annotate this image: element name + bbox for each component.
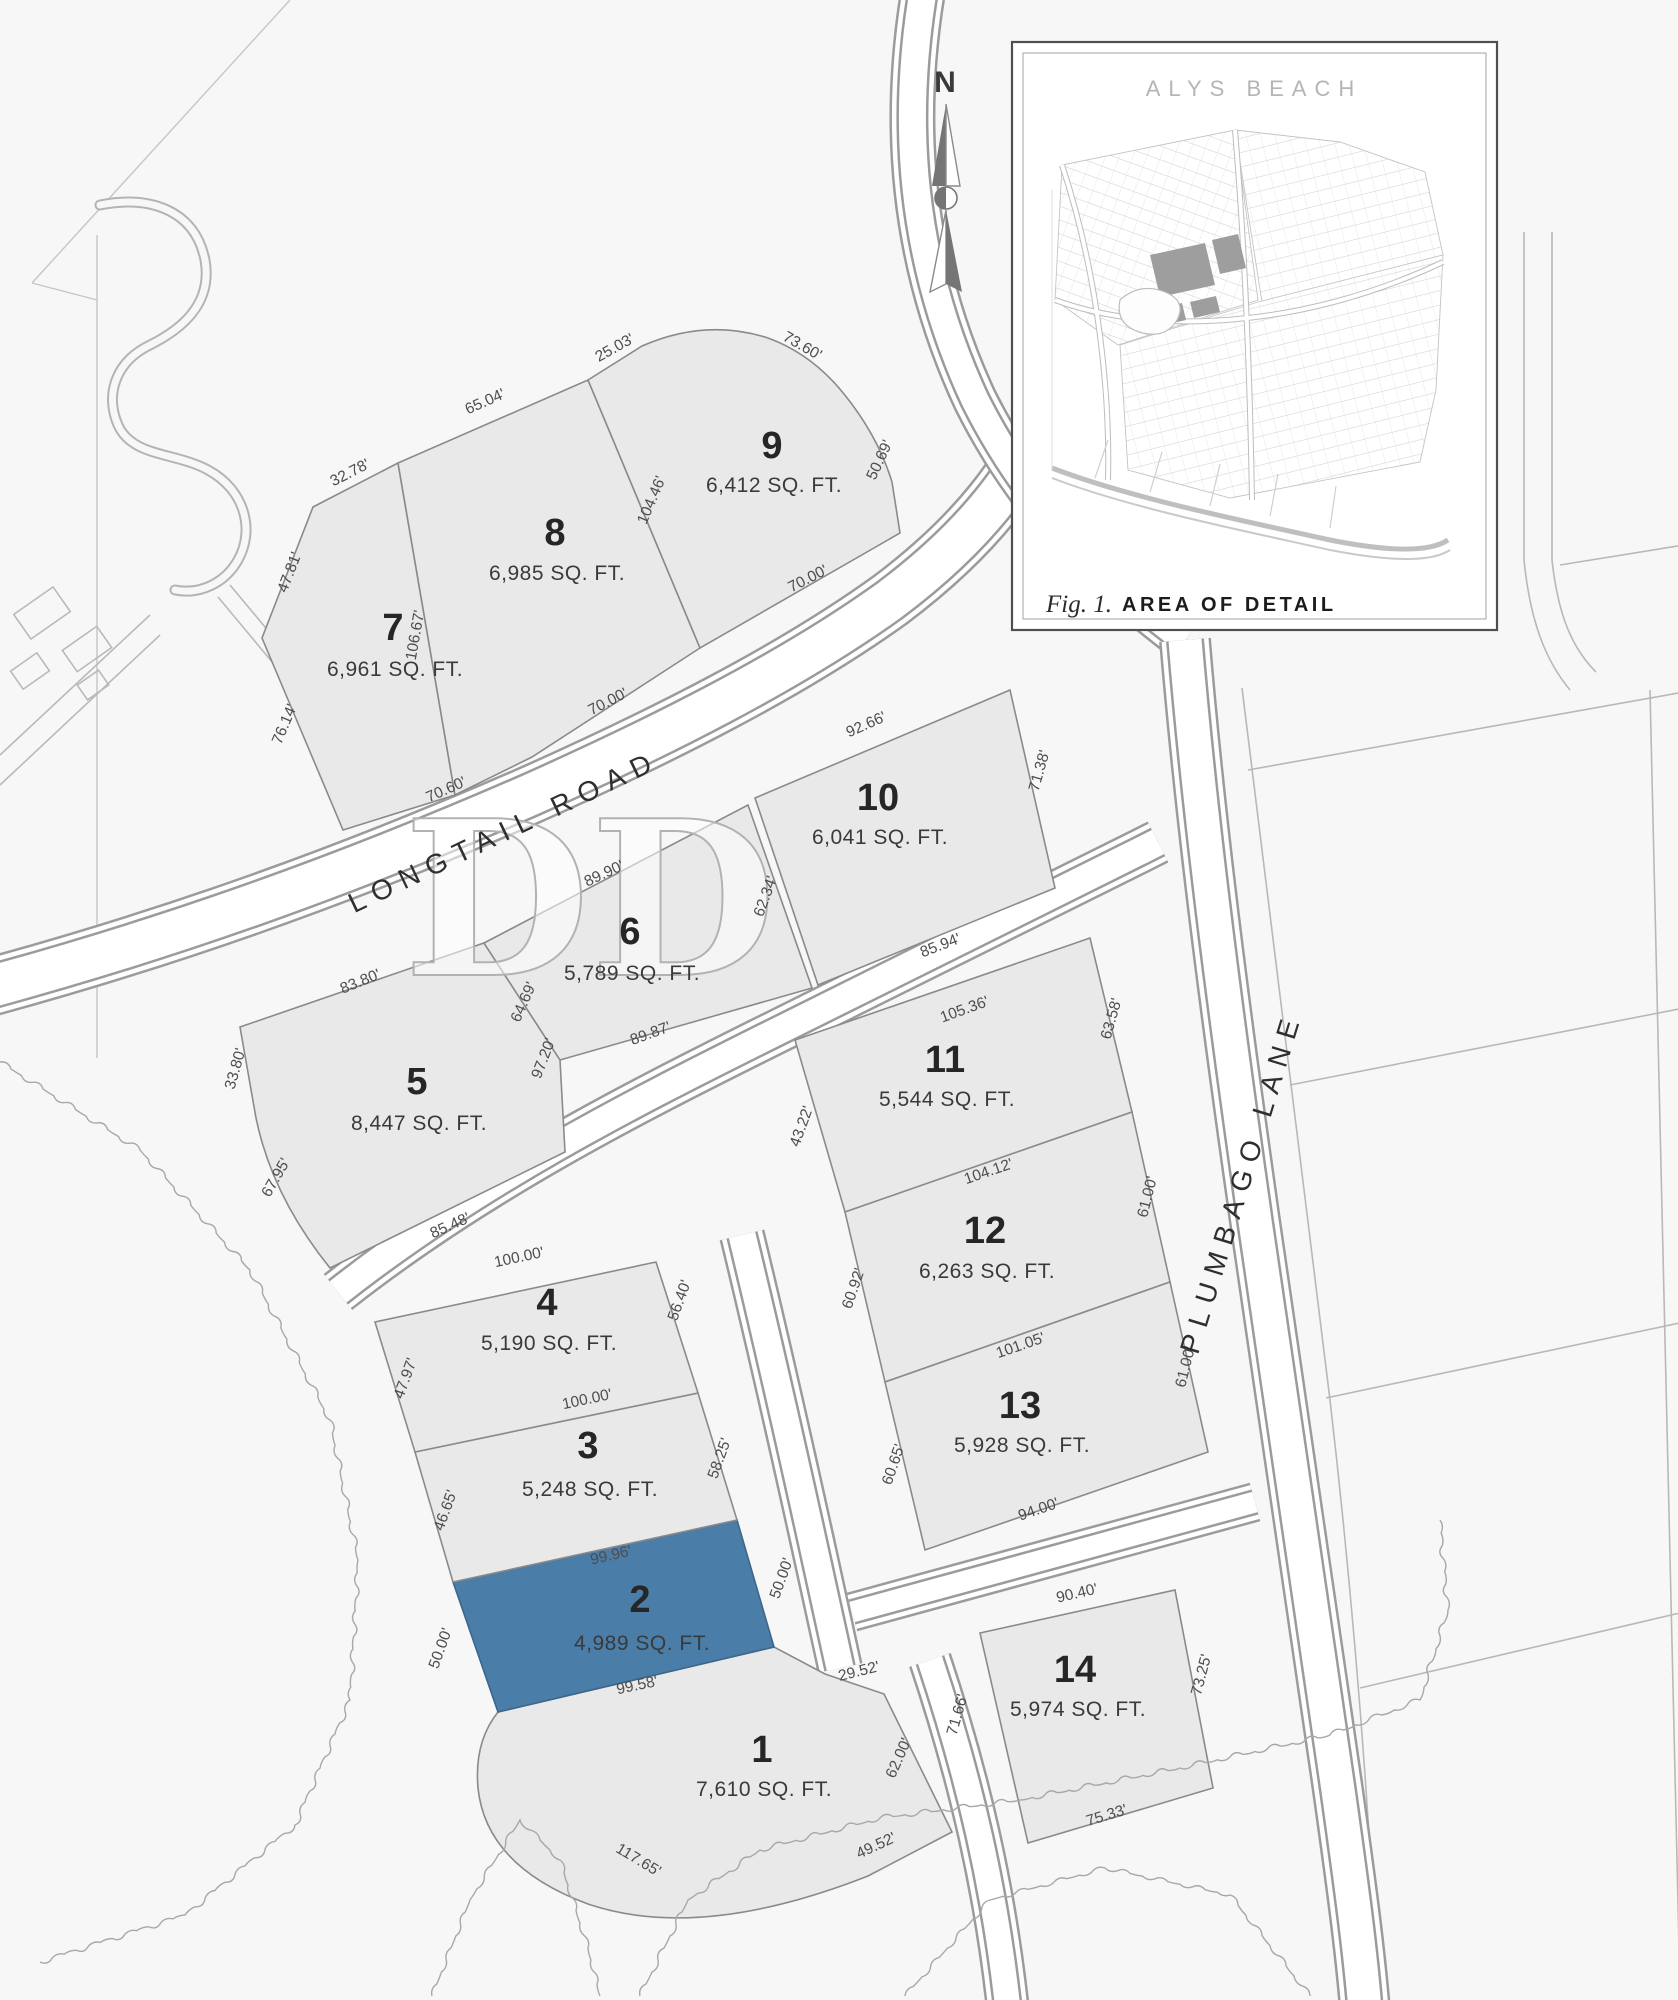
lot-8-dim-65.04: 65.04' — [463, 386, 508, 419]
inset-figure-label: Fig. 1. — [1045, 591, 1112, 618]
lot-9-area: 6,412 SQ. FT. — [706, 474, 842, 497]
lot-12-area: 6,263 SQ. FT. — [919, 1260, 1055, 1283]
lot-10-dim-92.66: 92.66' — [844, 709, 889, 742]
lot-8-area: 6,985 SQ. FT. — [489, 562, 625, 585]
trail-path — [100, 202, 246, 591]
lot-2-number: 2 — [629, 1579, 650, 1621]
lot-6-number: 6 — [619, 911, 640, 953]
lot-4-number: 4 — [536, 1282, 557, 1324]
lot-3-number: 3 — [577, 1425, 598, 1467]
lot-14-area: 5,974 SQ. FT. — [1010, 1698, 1146, 1721]
lot-14-number: 14 — [1054, 1649, 1096, 1691]
plat-map-page: DD 17,610 SQ. FT.117.65'49.52'62.00'29.5… — [0, 0, 1678, 2000]
lot-1-area: 7,610 SQ. FT. — [696, 1778, 832, 1801]
lot-2-dim-50.00: 50.00' — [426, 1626, 456, 1671]
lot-9-number: 9 — [761, 425, 782, 467]
lot-14-dim-73.25: 73.25' — [1188, 1652, 1215, 1697]
lot-7-number: 7 — [382, 607, 403, 649]
lot-13-number: 13 — [999, 1385, 1041, 1427]
lot-10-area: 6,041 SQ. FT. — [812, 826, 948, 849]
lot-3-area: 5,248 SQ. FT. — [522, 1478, 658, 1501]
lot-5-dim-33.80: 33.80' — [222, 1046, 250, 1091]
inset-caption: AREA OF DETAIL — [1122, 594, 1337, 616]
lot-2-dim-50.00: 50.00' — [767, 1556, 797, 1601]
lot-4-area: 5,190 SQ. FT. — [481, 1332, 617, 1355]
lot-5-number: 5 — [406, 1061, 427, 1103]
north-label: N — [934, 66, 958, 99]
lot-4-dim-56.40: 56.40' — [665, 1278, 695, 1323]
lot-8-number: 8 — [544, 512, 565, 554]
inset-title: ALYS BEACH — [1146, 76, 1363, 101]
lot-10-number: 10 — [857, 777, 899, 819]
lot-5-area: 8,447 SQ. FT. — [351, 1112, 487, 1135]
lot-1-number: 1 — [751, 1729, 772, 1771]
north-arrow-upper-light — [946, 104, 960, 186]
inset-map: ALYS BEACH — [1012, 42, 1497, 630]
tree-line — [905, 1867, 1310, 1996]
lot-6-area: 5,789 SQ. FT. — [564, 962, 700, 985]
plat-map: DD 17,610 SQ. FT.117.65'49.52'62.00'29.5… — [0, 0, 1678, 2000]
lot-12-number: 12 — [964, 1210, 1006, 1252]
lot-11-dim-43.22: 43.22' — [787, 1104, 817, 1149]
lot-13-area: 5,928 SQ. FT. — [954, 1434, 1090, 1457]
lot-7-dim-76.14: 76.14' — [269, 702, 301, 747]
lot-7-area: 6,961 SQ. FT. — [327, 658, 463, 681]
lot-11-number: 11 — [925, 1039, 965, 1081]
lot-10-dim-71.38: 71.38' — [1026, 748, 1054, 793]
watermark-logo: DD — [404, 773, 777, 1026]
lot-2-area: 4,989 SQ. FT. — [574, 1632, 710, 1655]
lot-4-dim-100.00: 100.00' — [493, 1244, 546, 1271]
lot-14-dim-90.40: 90.40' — [1055, 1581, 1100, 1607]
lot-11-area: 5,544 SQ. FT. — [879, 1088, 1015, 1111]
north-arrow-tail-dark — [946, 210, 962, 292]
